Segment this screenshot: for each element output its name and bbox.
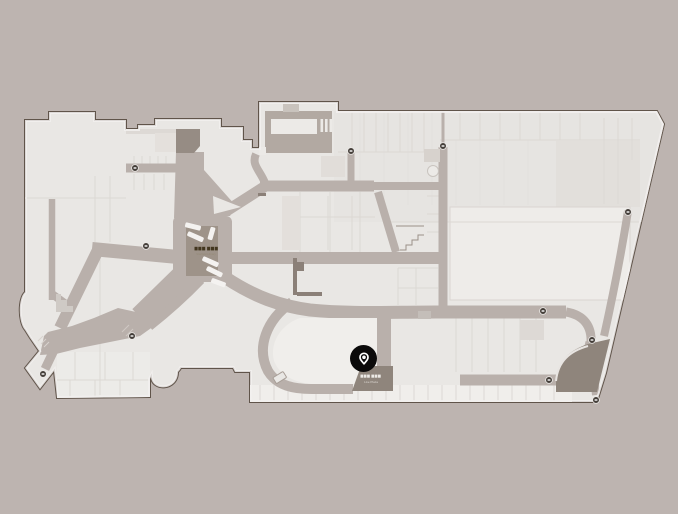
svg-text:Starfield Library: Starfield Library <box>196 252 216 256</box>
svg-text:Live Plaza: Live Plaza <box>364 380 378 384</box>
